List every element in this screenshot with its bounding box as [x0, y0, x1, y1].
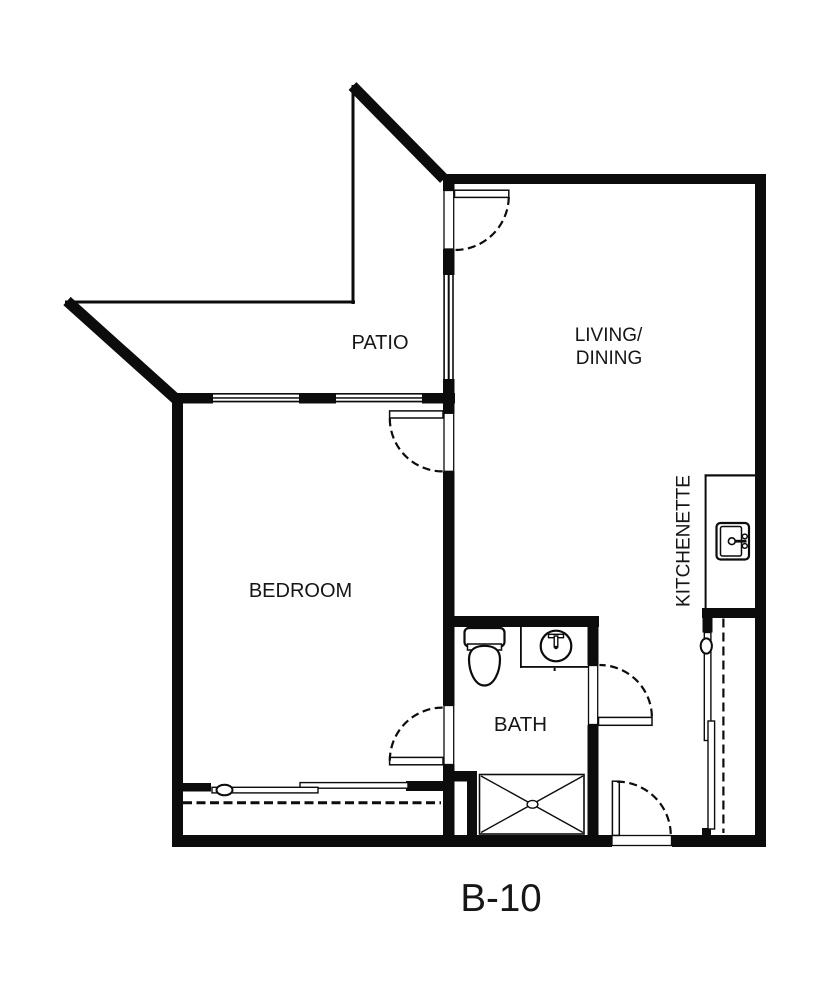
svg-text:BEDROOM: BEDROOM	[249, 580, 352, 602]
svg-text:KITCHENETTE: KITCHENETTE	[674, 475, 695, 607]
svg-text:LIVING/: LIVING/	[575, 325, 643, 346]
svg-text:BATH: BATH	[494, 713, 547, 736]
svg-text:B-10: B-10	[460, 877, 541, 920]
svg-text:PATIO: PATIO	[351, 332, 408, 354]
svg-text:DINING: DINING	[576, 348, 643, 369]
